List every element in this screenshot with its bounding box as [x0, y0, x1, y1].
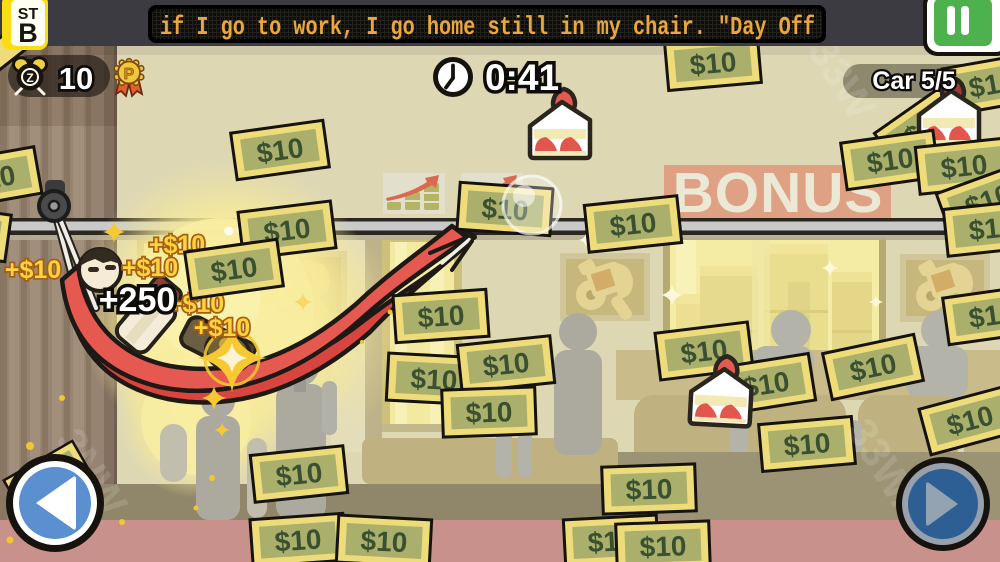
svg-text:if I go to work, I go home sti: if I go to work, I go home still in my c…	[160, 12, 815, 42]
svg-text:0:41: 0:41	[485, 57, 559, 98]
svg-text:+$10: +$10	[194, 314, 250, 342]
svg-text:B: B	[18, 18, 38, 48]
svg-text:Car 5/5: Car 5/5	[872, 67, 955, 95]
svg-text:10: 10	[59, 61, 93, 96]
svg-text:Z: Z	[26, 71, 33, 85]
svg-text:+$10: +$10	[5, 256, 61, 284]
svg-text:+$10: +$10	[122, 254, 178, 282]
svg-text:+250: +250	[99, 281, 176, 319]
svg-text:P: P	[124, 66, 135, 83]
